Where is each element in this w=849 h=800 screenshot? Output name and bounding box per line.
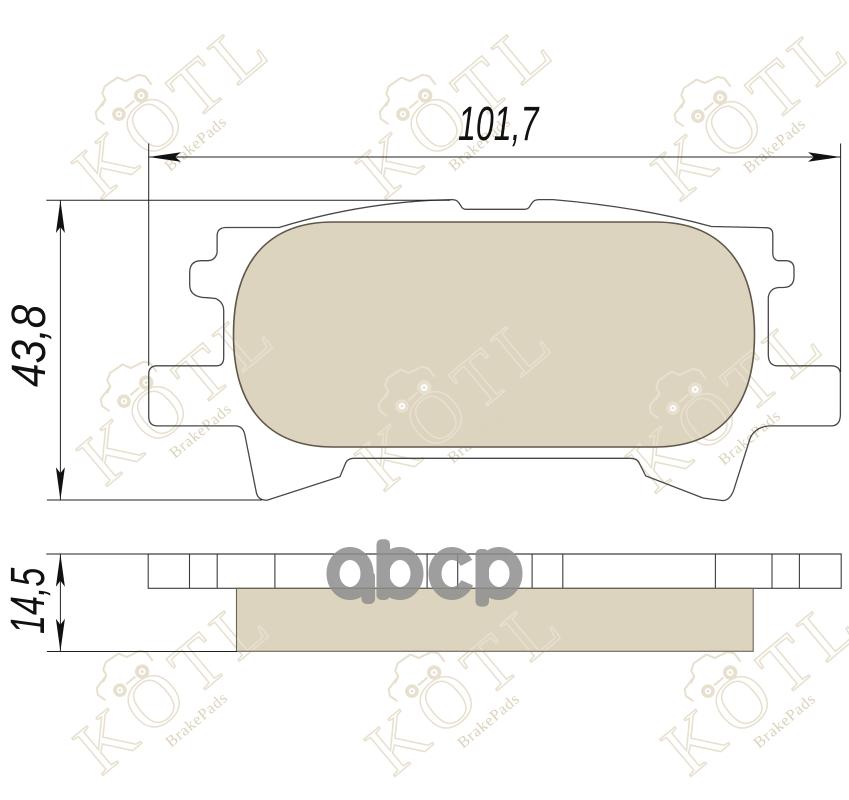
svg-text:43,8: 43,8 (1, 305, 55, 387)
svg-text:101,7: 101,7 (458, 97, 539, 151)
svg-text:14,5: 14,5 (0, 567, 54, 634)
